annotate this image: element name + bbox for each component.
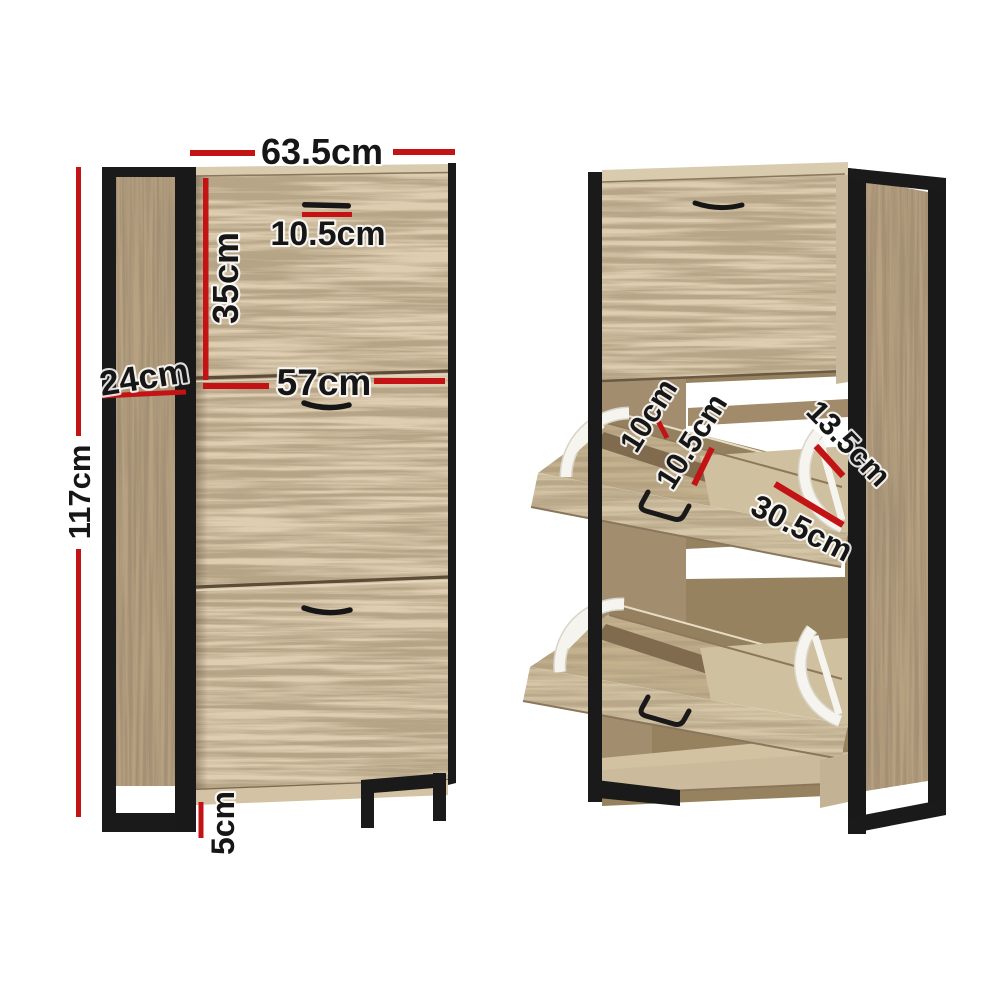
svg-text:57cm: 57cm: [277, 362, 372, 403]
svg-text:117cm: 117cm: [62, 445, 97, 540]
svg-text:35cm: 35cm: [205, 232, 246, 324]
svg-text:5cm: 5cm: [205, 791, 241, 855]
svg-text:63.5cm: 63.5cm: [261, 131, 383, 172]
svg-text:10.5cm: 10.5cm: [270, 215, 385, 253]
